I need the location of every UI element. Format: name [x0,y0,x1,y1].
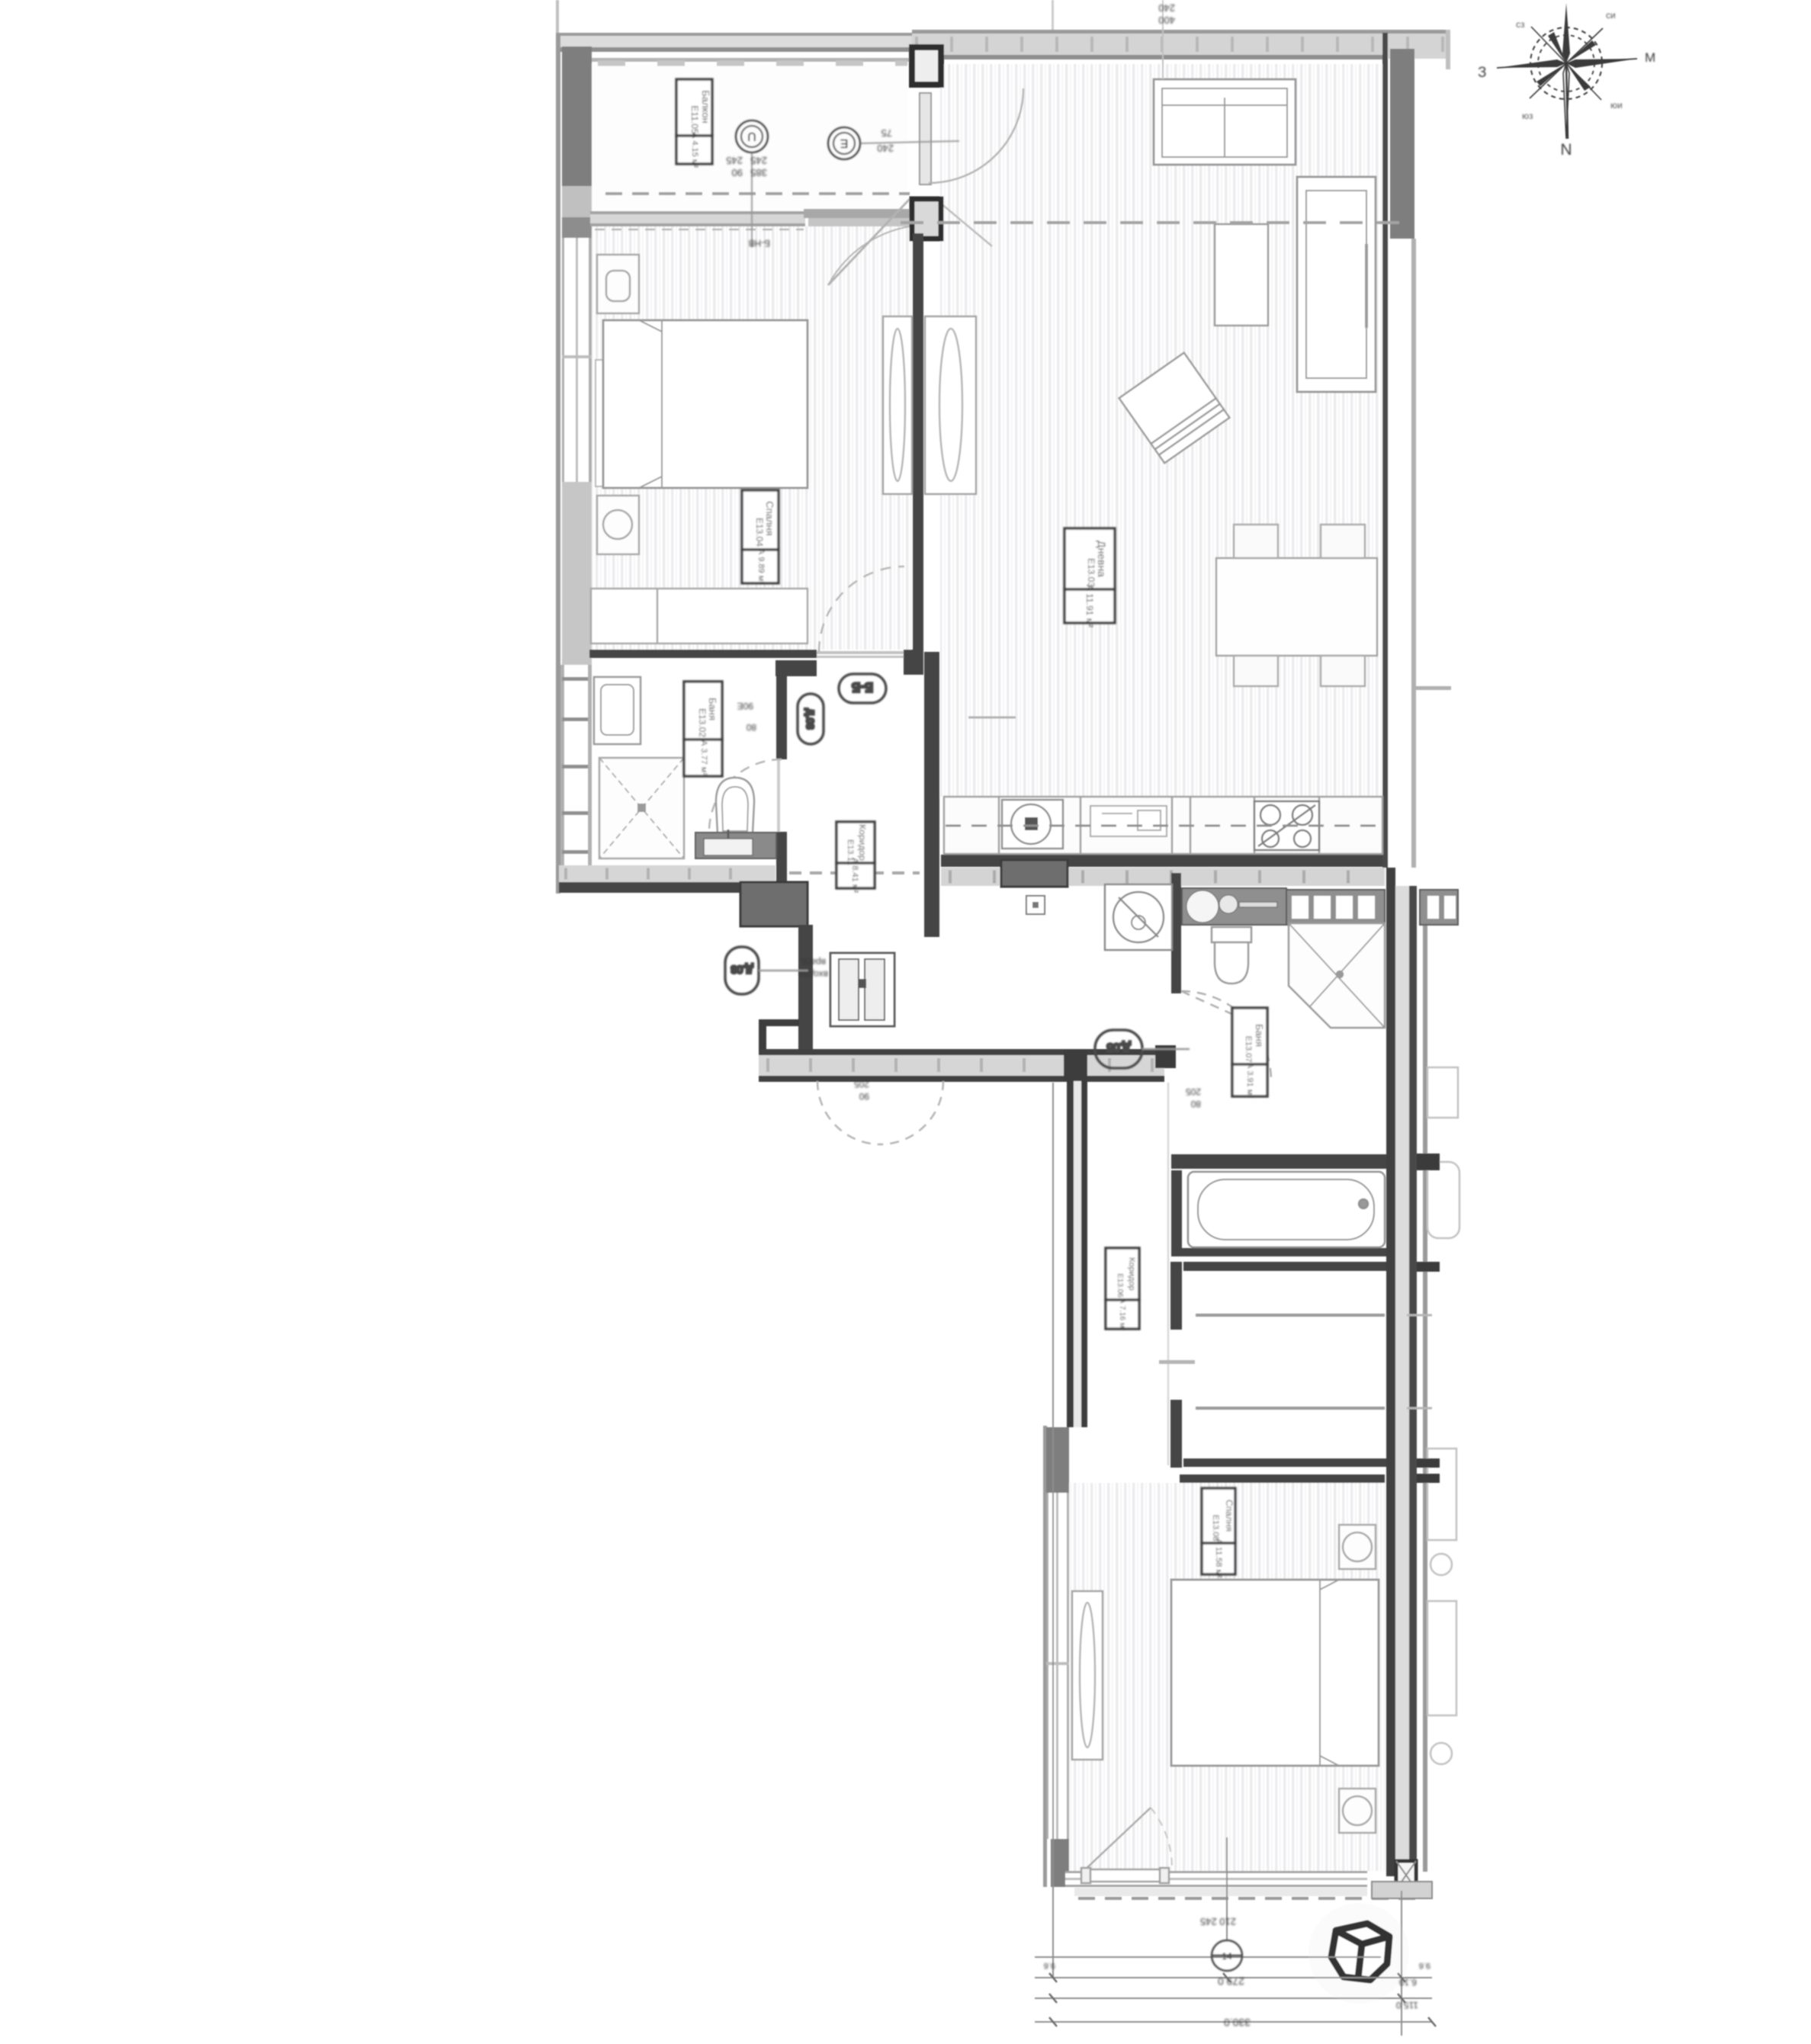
svg-text:Е: Е [840,136,849,149]
svg-text:90: 90 [732,167,743,178]
svg-text:врата: врата [801,957,826,967]
svg-text:115.0: 115.0 [1396,2000,1418,2010]
svg-text:240: 240 [1158,2,1175,14]
svg-text:А 3.77 м²: А 3.77 м² [699,740,708,775]
svg-text:Балкон: Балкон [700,90,711,124]
svg-text:205: 205 [854,1079,869,1089]
svg-text:Коридор: Коридор [857,824,868,861]
svg-text:си: си [1606,10,1616,21]
svg-text:Д.08: Д.08 [804,709,816,730]
svg-text:сз: сз [1516,19,1525,30]
svg-text:юз: юз [1522,111,1533,121]
svg-text:юи: юи [1610,100,1623,111]
svg-text:9.6: 9.6 [1419,1961,1430,1970]
svg-text:Е13.02: Е13.02 [697,708,708,737]
svg-text:Баня: Баня [1254,1024,1265,1047]
svg-text:Дневна: Дневна [1096,541,1108,577]
svg-text:А 11.91 м²: А 11.91 м² [1084,585,1095,627]
svg-text:Спалня: Спалня [764,501,775,535]
svg-text:385: 385 [750,167,767,178]
svg-text:А 11.58 м²: А 11.58 м² [1214,1539,1223,1578]
svg-text:400: 400 [1158,14,1175,26]
svg-text:А 9.89 м²: А 9.89 м² [756,549,766,584]
svg-text:Д.05: Д.05 [1106,1041,1130,1054]
svg-text:205: 205 [1186,1086,1201,1097]
svg-text:80: 80 [1190,1099,1201,1109]
svg-text:А 3.91 м²: А 3.91 м² [1245,1063,1254,1098]
svg-text:330.0: 330.0 [1224,2017,1251,2029]
svg-text:М: М [1645,50,1655,65]
svg-text:А 8.41 м²: А 8.41 м² [850,858,859,893]
svg-text:80: 80 [746,722,756,733]
svg-text:З: З [1478,65,1486,81]
svg-text:Е13.03: Е13.03 [1086,558,1097,587]
svg-text:90Е: 90Е [737,701,753,711]
svg-text:210 245: 210 245 [1200,1916,1236,1927]
svg-text:240: 240 [877,143,894,154]
svg-text:Б-НВ: Б-НВ [748,238,770,249]
svg-text:90: 90 [859,1091,869,1102]
svg-text:Е13.04: Е13.04 [754,518,765,547]
svg-text:9.6: 9.6 [1044,1961,1055,1970]
svg-text:Б-Б: Б-Б [852,680,873,695]
svg-text:245: 245 [750,155,767,166]
svg-text:Баня: Баня [707,698,718,720]
svg-text:Спалня: Спалня [1224,1500,1235,1532]
svg-text:Е13.08: Е13.08 [1211,1515,1220,1542]
svg-text:N: N [1560,141,1572,159]
svg-text:Д.03: Д.03 [731,964,753,976]
svg-text:Е11.05: Е11.05 [689,105,700,133]
svg-text:75: 75 [881,127,892,139]
svg-text:А 7.16 м²: А 7.16 м² [1118,1298,1126,1331]
svg-text:245: 245 [726,155,743,166]
svg-text:А 4.15 м²: А 4.15 м² [690,133,699,168]
svg-text:Коридор: Коридор [1127,1257,1136,1290]
svg-text:U: U [747,130,756,143]
svg-text:14: 14 [1222,1951,1232,1962]
svg-text:Е13.06: Е13.06 [1116,1273,1124,1298]
svg-text:Е13.07: Е13.07 [1244,1036,1253,1063]
